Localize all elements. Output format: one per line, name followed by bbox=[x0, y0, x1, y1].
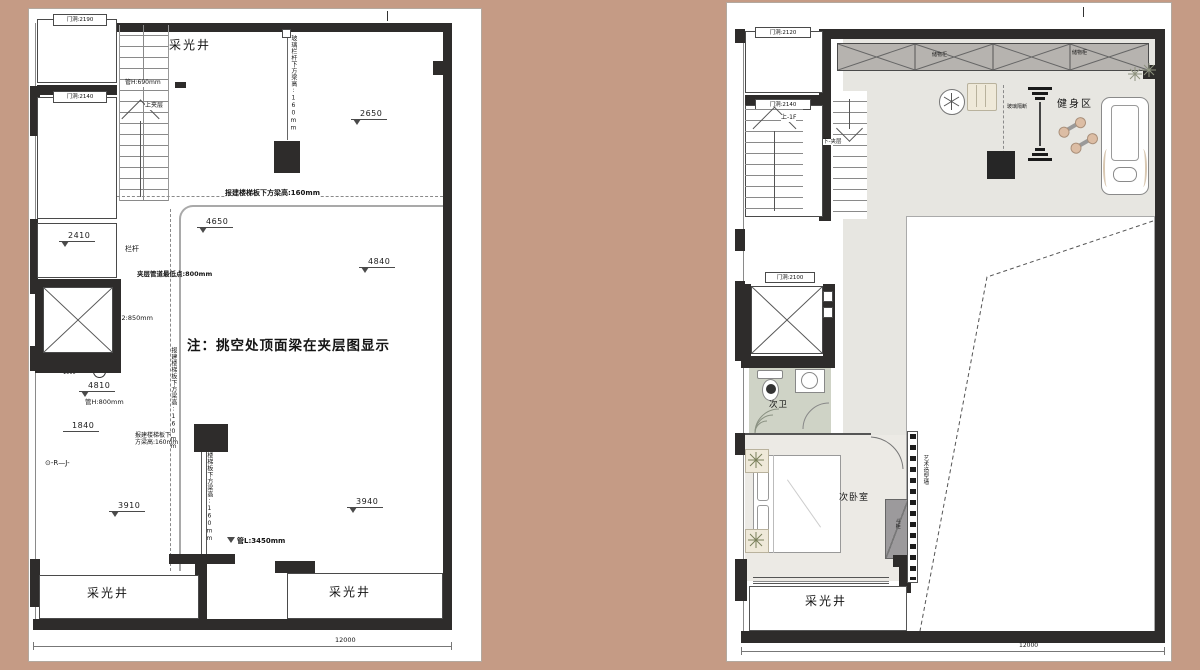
gym-label: 健身区 bbox=[1057, 99, 1093, 111]
elevation-marker: 4810 bbox=[79, 381, 115, 397]
bedroom-door-arc bbox=[869, 435, 905, 471]
pipe-corner bbox=[179, 205, 195, 221]
elevation-marker: 1840 bbox=[63, 421, 99, 432]
elevation-value: 4840 bbox=[368, 257, 390, 266]
corridor-floor bbox=[843, 218, 907, 435]
cabinet-hatch-icon bbox=[838, 44, 1148, 70]
fan-icon bbox=[939, 89, 965, 115]
cabinet-label: 储物柜 bbox=[932, 53, 947, 59]
wall-segment bbox=[741, 284, 751, 356]
beam-chip bbox=[175, 82, 186, 88]
plant-icon bbox=[1125, 57, 1159, 91]
nightstand-plant bbox=[745, 449, 769, 473]
elevation-triangle-icon bbox=[349, 507, 357, 513]
treadmill-handle bbox=[1103, 149, 1111, 187]
beam-note: 报建楼梯板下方梁高:160mm bbox=[225, 189, 320, 197]
shower-arcs-icon bbox=[753, 407, 783, 435]
skylight-label: 采光井 bbox=[805, 595, 847, 609]
room-outline bbox=[37, 19, 117, 83]
elevation-triangle-icon bbox=[61, 241, 69, 247]
wall-segment bbox=[169, 554, 235, 564]
dimension-tick bbox=[451, 642, 452, 650]
toilet-seat bbox=[766, 384, 776, 394]
void-boundary-line bbox=[907, 217, 1154, 632]
treadmill-console bbox=[1113, 167, 1137, 182]
pipe-note: 管L:3450mm bbox=[227, 537, 285, 545]
column bbox=[274, 141, 300, 173]
feature-wall-note: 艺术造型墙 bbox=[922, 455, 928, 525]
fan-blades-icon bbox=[940, 90, 963, 113]
elevation-triangle-icon bbox=[361, 267, 369, 273]
toilet-tank bbox=[757, 370, 783, 379]
stair bbox=[833, 91, 867, 219]
elevation-marker: 4650 bbox=[197, 217, 233, 233]
elevation-triangle-icon bbox=[111, 511, 119, 517]
wardrobe: 斗柜 bbox=[885, 499, 909, 559]
railing-note: 栏杆 bbox=[125, 245, 139, 253]
elevation-marker: 2650 bbox=[351, 109, 387, 125]
elevation-triangle-icon bbox=[81, 391, 89, 397]
skylight-label: 采光井 bbox=[169, 39, 211, 53]
window-mid-line bbox=[753, 581, 889, 582]
elevation-value: 4810 bbox=[88, 381, 110, 390]
elevation-value: 3940 bbox=[356, 497, 378, 506]
door-label: 门洞:2140 bbox=[53, 91, 107, 103]
stair-arrow-stem bbox=[140, 121, 141, 197]
column-line bbox=[287, 32, 288, 140]
wall-junction bbox=[194, 424, 228, 452]
elevation-value: 2410 bbox=[68, 231, 90, 240]
storage-cabinet-band bbox=[837, 43, 1149, 71]
door-arc-icon bbox=[801, 401, 831, 431]
reference-mark: ⊙-R—J- bbox=[45, 459, 70, 467]
pipe-horizontal bbox=[194, 205, 443, 207]
barbell-plate bbox=[1028, 158, 1052, 161]
stair-up-note: 上夹层 bbox=[145, 103, 163, 110]
beam-note-vertical: 报建楼梯板下方梁高:160mm bbox=[169, 347, 176, 455]
pipe-note: 管H:800mm bbox=[85, 399, 124, 406]
treadmill-handle bbox=[1139, 149, 1147, 187]
wall-segment bbox=[443, 23, 452, 629]
elevation-triangle-icon bbox=[227, 537, 235, 543]
door-label: 门洞:2120 bbox=[755, 27, 811, 38]
nightstand-plant bbox=[745, 529, 769, 553]
pipe-note: 管H:690mm bbox=[125, 80, 161, 87]
dimension-line bbox=[33, 646, 452, 647]
glass-partition-line bbox=[1003, 85, 1004, 159]
elevation-marker: 3910 bbox=[109, 501, 145, 517]
wall-segment bbox=[33, 619, 452, 630]
stair-up-note: 上-1F bbox=[781, 115, 796, 122]
bedroom-label: 次卧室 bbox=[839, 493, 869, 503]
wall-segment bbox=[433, 61, 443, 75]
cabinet-door-line bbox=[985, 85, 986, 107]
pipe-note-text: 管L:3450mm bbox=[237, 537, 285, 545]
barbell-plate bbox=[1035, 97, 1045, 100]
wall-segment bbox=[1155, 29, 1165, 641]
dimension-value: 12000 bbox=[1019, 643, 1038, 650]
door-arc-icon bbox=[869, 435, 905, 471]
stair-arrow-stem bbox=[774, 131, 775, 211]
barbell-plate bbox=[1032, 153, 1048, 156]
elevation-line bbox=[63, 431, 99, 432]
elevator-shaft bbox=[751, 286, 823, 354]
stair-down-note: 下-夹层 bbox=[823, 139, 842, 145]
skylight-label: 采光井 bbox=[87, 587, 129, 601]
door-label: 门洞:2190 bbox=[53, 14, 107, 26]
void-note: 注：挑空处顶面梁在夹层图显示 bbox=[187, 339, 390, 355]
wall-line bbox=[745, 433, 871, 435]
barbell-plate bbox=[1028, 87, 1052, 90]
window bbox=[753, 577, 889, 584]
wall-segment bbox=[741, 356, 835, 368]
wall-segment bbox=[275, 561, 315, 573]
bathroom-label: 次卫 bbox=[769, 401, 788, 411]
cabinet-door-line bbox=[976, 85, 977, 107]
shaft-accessory bbox=[823, 307, 833, 318]
wall-segment bbox=[831, 29, 1165, 39]
wardrobe-label: 斗柜 bbox=[894, 518, 900, 529]
room-outline bbox=[37, 97, 117, 219]
door-label: 门洞:2100 bbox=[765, 272, 815, 283]
double-height-void bbox=[906, 216, 1155, 633]
dimension-tick bbox=[741, 647, 742, 655]
elevation-value: 2650 bbox=[360, 109, 382, 118]
dimension-tick bbox=[33, 642, 34, 650]
elevation-marker: 4840 bbox=[359, 257, 395, 273]
dimension-value: 12000 bbox=[335, 637, 356, 644]
plant-leaves-icon bbox=[746, 450, 766, 470]
elevation-triangle-icon bbox=[199, 227, 207, 233]
canvas: 门洞:2190 门洞:2140 采光井 上夹层 管H:690mm 玻璃栏杆下方梁… bbox=[0, 0, 1200, 670]
punching-bag bbox=[987, 151, 1015, 179]
plant-leaves-icon bbox=[1125, 57, 1159, 91]
dimension-line bbox=[741, 651, 1165, 652]
elevation-value: 4650 bbox=[206, 217, 228, 226]
cabinet-icon bbox=[967, 83, 997, 111]
top-tick-mark bbox=[387, 11, 388, 21]
glass-partition-note: 玻璃隔断 bbox=[1007, 105, 1027, 111]
plant-leaves-icon bbox=[746, 530, 766, 550]
elevation-triangle-icon bbox=[353, 119, 361, 125]
skylight-label: 采光井 bbox=[329, 586, 371, 600]
top-tick-mark bbox=[1083, 7, 1084, 17]
elevation-marker: 3940 bbox=[347, 497, 383, 513]
barbell bbox=[1027, 87, 1053, 171]
barbell-plate bbox=[1035, 148, 1045, 151]
beam-note-vertical: 玻璃栏杆下方梁高:160mm bbox=[289, 35, 296, 141]
bed-line bbox=[773, 455, 774, 553]
right-floorplan-panel: 储物柜 储物柜 门洞:2120 门洞:2140 上-1F 下-夹层 玻璃隔断 bbox=[726, 2, 1172, 662]
barbell-bar bbox=[1039, 102, 1041, 146]
room-outline bbox=[745, 31, 823, 93]
elevator-cross-icon bbox=[44, 288, 112, 352]
wall-segment bbox=[735, 29, 745, 43]
wall-segment bbox=[735, 559, 747, 601]
reference-mark-text: -R—J- bbox=[51, 459, 70, 467]
sink-basin bbox=[801, 372, 818, 389]
shaft-accessory bbox=[823, 291, 833, 302]
wall-segment bbox=[735, 433, 745, 455]
barbell-plate bbox=[1032, 92, 1048, 95]
dimension-tick bbox=[1164, 647, 1165, 655]
elevation-value: 3910 bbox=[118, 501, 140, 510]
elevation-marker: 2410 bbox=[59, 231, 95, 247]
bathroom-door-arc bbox=[801, 401, 831, 431]
feature-wall-dots bbox=[910, 434, 916, 580]
wall-segment bbox=[741, 631, 1165, 643]
elevation-value: 1840 bbox=[72, 421, 94, 430]
duct-lowest-note: 夹层管道最低点:800mm bbox=[137, 271, 212, 278]
wall-double-line bbox=[201, 452, 207, 554]
elevator-shaft bbox=[43, 287, 113, 353]
shower-icon bbox=[753, 407, 783, 435]
elevator-cross-icon bbox=[752, 287, 822, 353]
left-floorplan-panel: 门洞:2190 门洞:2140 采光井 上夹层 管H:690mm 玻璃栏杆下方梁… bbox=[28, 8, 482, 662]
cabinet-label: 储物柜 bbox=[1072, 51, 1087, 57]
wall-segment bbox=[35, 361, 121, 373]
wall-segment bbox=[735, 229, 745, 251]
treadmill-belt bbox=[1111, 105, 1139, 161]
